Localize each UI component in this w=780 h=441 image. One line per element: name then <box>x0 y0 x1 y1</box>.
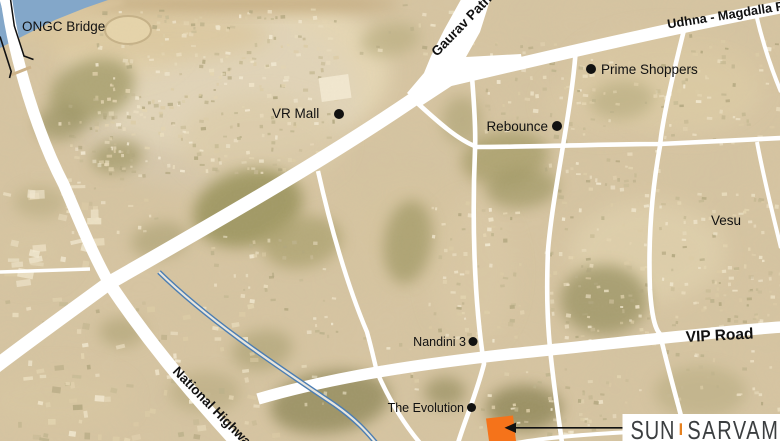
svg-text:Nandini 3: Nandini 3 <box>413 335 466 349</box>
svg-text:Prime Shoppers: Prime Shoppers <box>601 62 698 77</box>
svg-text:Vesu: Vesu <box>711 213 741 228</box>
svg-text:The Evolution: The Evolution <box>388 401 464 415</box>
svg-text:VR Mall: VR Mall <box>272 106 319 121</box>
svg-text:VIP Road: VIP Road <box>685 325 754 346</box>
svg-text:SUN: SUN <box>630 416 674 441</box>
svg-text:Rebounce: Rebounce <box>486 119 548 134</box>
svg-text:ONGC Bridge: ONGC Bridge <box>22 19 105 34</box>
